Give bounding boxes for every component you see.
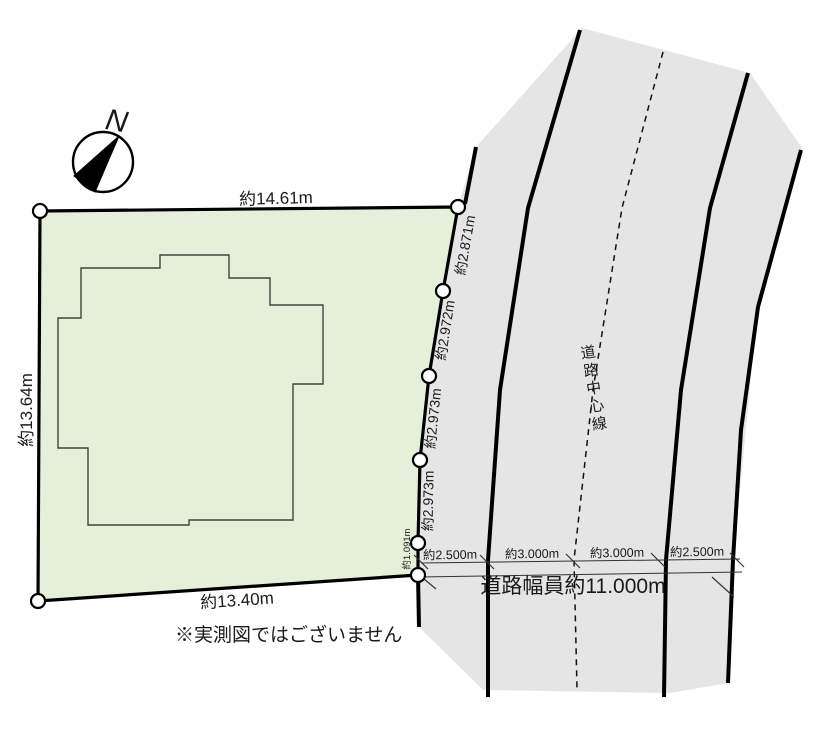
vertex-marker bbox=[33, 204, 47, 218]
edge-segment-label: 約1.091m bbox=[401, 528, 413, 569]
compass: N bbox=[73, 103, 133, 192]
vertex-marker bbox=[413, 453, 427, 467]
road-width-segment-label: 約2.500m bbox=[423, 547, 477, 563]
plot-left-dimension: 約13.64m bbox=[17, 373, 36, 447]
plot-polygon bbox=[38, 207, 458, 601]
plan-canvas: N 約14.61m 約13.64m 約13.40m 約2.871m 約2.972… bbox=[0, 0, 830, 733]
vertex-marker bbox=[451, 200, 465, 214]
plot-bottom-dimension: 約13.40m bbox=[200, 588, 275, 612]
vertex-marker bbox=[422, 369, 436, 383]
road-width-segment-label: 約3.000m bbox=[590, 545, 644, 561]
vertex-marker bbox=[436, 284, 450, 298]
edge-segment-label: 約2.973m bbox=[419, 470, 436, 531]
disclaimer-note: ※実測図ではございません bbox=[175, 623, 402, 646]
vertex-marker bbox=[411, 568, 425, 582]
plot-top-dimension: 約14.61m bbox=[239, 188, 313, 209]
road-width-segment-label: 約2.500m bbox=[670, 544, 724, 560]
road-width-segment-label: 約3.000m bbox=[505, 546, 559, 562]
road-total-width-label: 道路幅員約11.000m bbox=[480, 575, 665, 598]
vertex-marker bbox=[31, 594, 45, 608]
site-plan-diagram: N 約14.61m 約13.64m 約13.40m 約2.871m 約2.972… bbox=[0, 0, 830, 733]
compass-north-label: N bbox=[103, 103, 130, 139]
